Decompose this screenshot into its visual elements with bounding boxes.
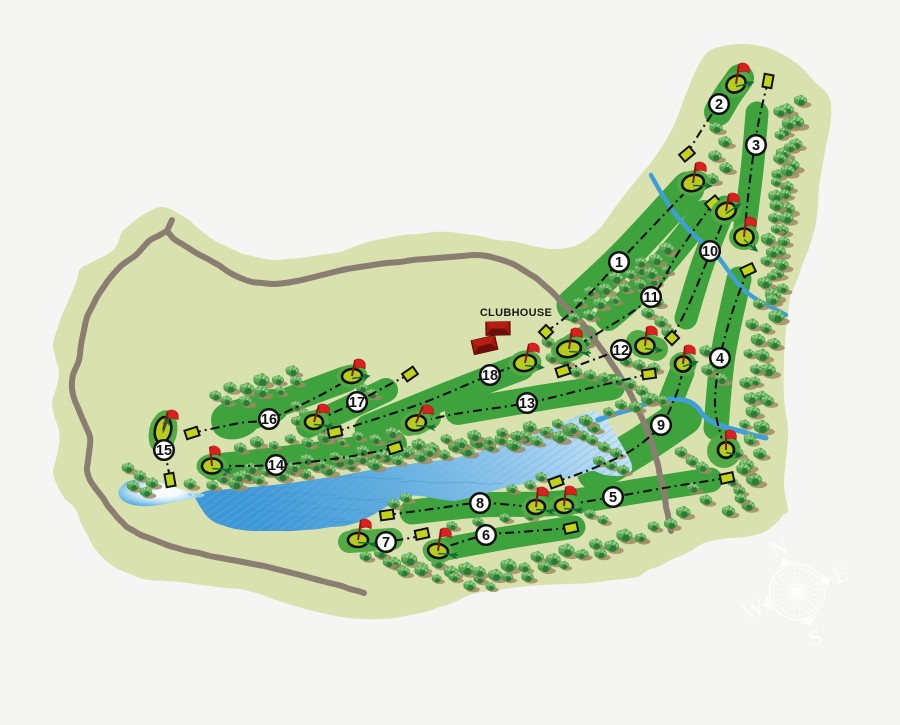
svg-text:13: 13	[519, 396, 535, 412]
svg-text:9: 9	[657, 418, 665, 434]
svg-text:14: 14	[268, 458, 284, 474]
svg-text:15: 15	[156, 443, 172, 459]
svg-text:1: 1	[615, 255, 623, 271]
svg-text:6: 6	[482, 528, 490, 544]
svg-text:18: 18	[482, 368, 498, 384]
svg-text:10: 10	[702, 244, 718, 260]
svg-text:8: 8	[476, 496, 484, 512]
svg-text:12: 12	[613, 343, 629, 359]
svg-text:5: 5	[609, 490, 617, 506]
svg-text:17: 17	[349, 395, 365, 411]
svg-text:3: 3	[752, 138, 760, 154]
svg-text:CLUBHOUSE: CLUBHOUSE	[480, 307, 552, 319]
svg-text:2: 2	[715, 97, 723, 113]
svg-text:4: 4	[716, 351, 724, 367]
svg-text:11: 11	[643, 290, 658, 306]
svg-text:7: 7	[382, 535, 390, 551]
svg-text:16: 16	[261, 412, 277, 428]
